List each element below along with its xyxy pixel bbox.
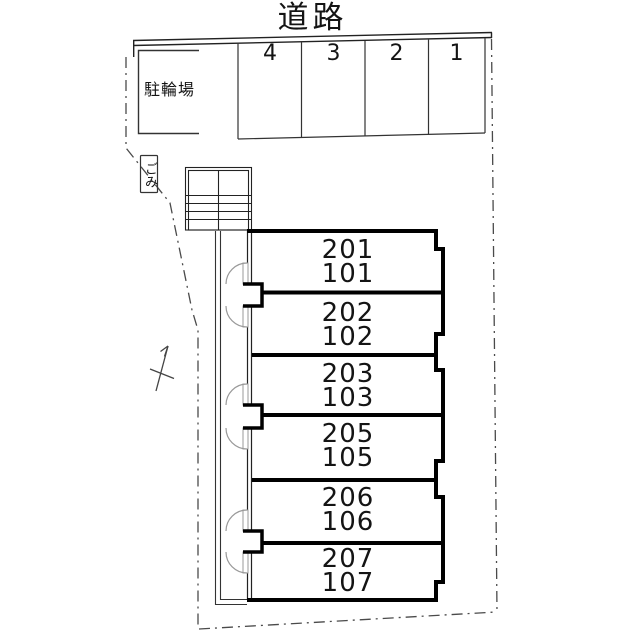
parking-stall-1-label: 1 [435, 41, 479, 67]
unit-label-202-102: 202 102 [252, 302, 444, 350]
unit-lower-number: 102 [252, 326, 444, 350]
unit-lower-number: 107 [252, 572, 444, 596]
unit-label-201-101: 201 101 [252, 239, 444, 287]
door-leaf-202 [243, 306, 248, 327]
garbage-label: ごみ [139, 158, 159, 192]
north-arrow [150, 346, 174, 391]
door-leaf-205 [243, 428, 248, 449]
door-leaf-206 [243, 510, 248, 531]
boundary-left-line [126, 57, 198, 625]
unit-lower-number: 103 [252, 387, 444, 411]
unit-lower-number: 105 [252, 447, 444, 471]
unit-lower-number: 101 [252, 263, 444, 287]
road-label: 道路 [230, 0, 395, 37]
parking-stall-4-label: 4 [248, 41, 292, 67]
boundary-right-line [492, 39, 498, 612]
door-leaf-203 [243, 384, 248, 405]
unit-lower-number: 106 [252, 511, 444, 535]
building-left-wall [248, 231, 252, 600]
site-plan: 道路 駐輪場 ごみ 4 3 2 1 201 101 202 102 203 10… [0, 0, 640, 639]
unit-label-205-105: 205 105 [252, 423, 444, 471]
boundary-bottom-line [199, 612, 496, 629]
unit-label-203-103: 203 103 [252, 363, 444, 411]
parking-stall-3-label: 3 [312, 41, 356, 67]
bicycle-parking-label: 駐輪場 [139, 79, 200, 101]
unit-label-206-106: 206 106 [252, 487, 444, 535]
parking-stall-2-label: 2 [375, 41, 419, 67]
door-leaf-207 [243, 552, 248, 573]
walkway [216, 231, 248, 605]
stall-bottom-line [238, 133, 485, 139]
entry-doors [226, 263, 248, 573]
door-leaf-201 [243, 263, 248, 284]
unit-label-207-107: 207 107 [252, 548, 444, 596]
walkway-inner-line [221, 231, 248, 600]
staircase [186, 168, 252, 231]
